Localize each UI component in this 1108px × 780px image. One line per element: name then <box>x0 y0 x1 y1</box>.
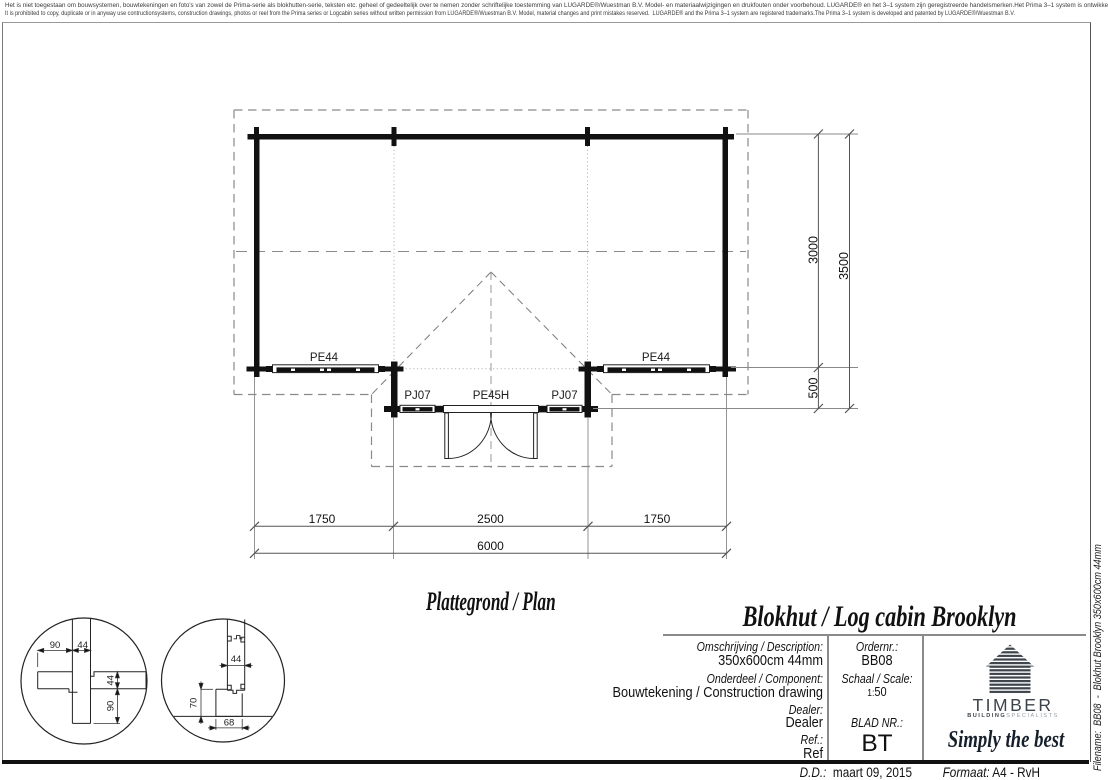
svg-text:PJ07: PJ07 <box>551 390 577 402</box>
svg-text:PE44: PE44 <box>642 352 671 364</box>
svg-text:44: 44 <box>77 640 88 651</box>
svg-text:PE45H: PE45H <box>473 390 509 402</box>
svg-text:44: 44 <box>231 654 242 665</box>
svg-text:90: 90 <box>106 701 117 712</box>
svg-text:PJ07: PJ07 <box>404 390 430 402</box>
svg-text:68: 68 <box>224 718 235 729</box>
svg-text:3500: 3500 <box>837 252 851 280</box>
svg-text:1750: 1750 <box>644 512 671 526</box>
svg-text:500: 500 <box>807 378 821 399</box>
svg-text:1750: 1750 <box>309 512 336 526</box>
svg-text:2500: 2500 <box>477 512 504 526</box>
svg-text:70: 70 <box>189 698 200 709</box>
svg-text:90: 90 <box>50 640 61 651</box>
svg-text:PE44: PE44 <box>310 352 339 364</box>
svg-text:3000: 3000 <box>807 236 821 264</box>
svg-text:44: 44 <box>106 675 117 686</box>
svg-text:6000: 6000 <box>477 539 504 553</box>
